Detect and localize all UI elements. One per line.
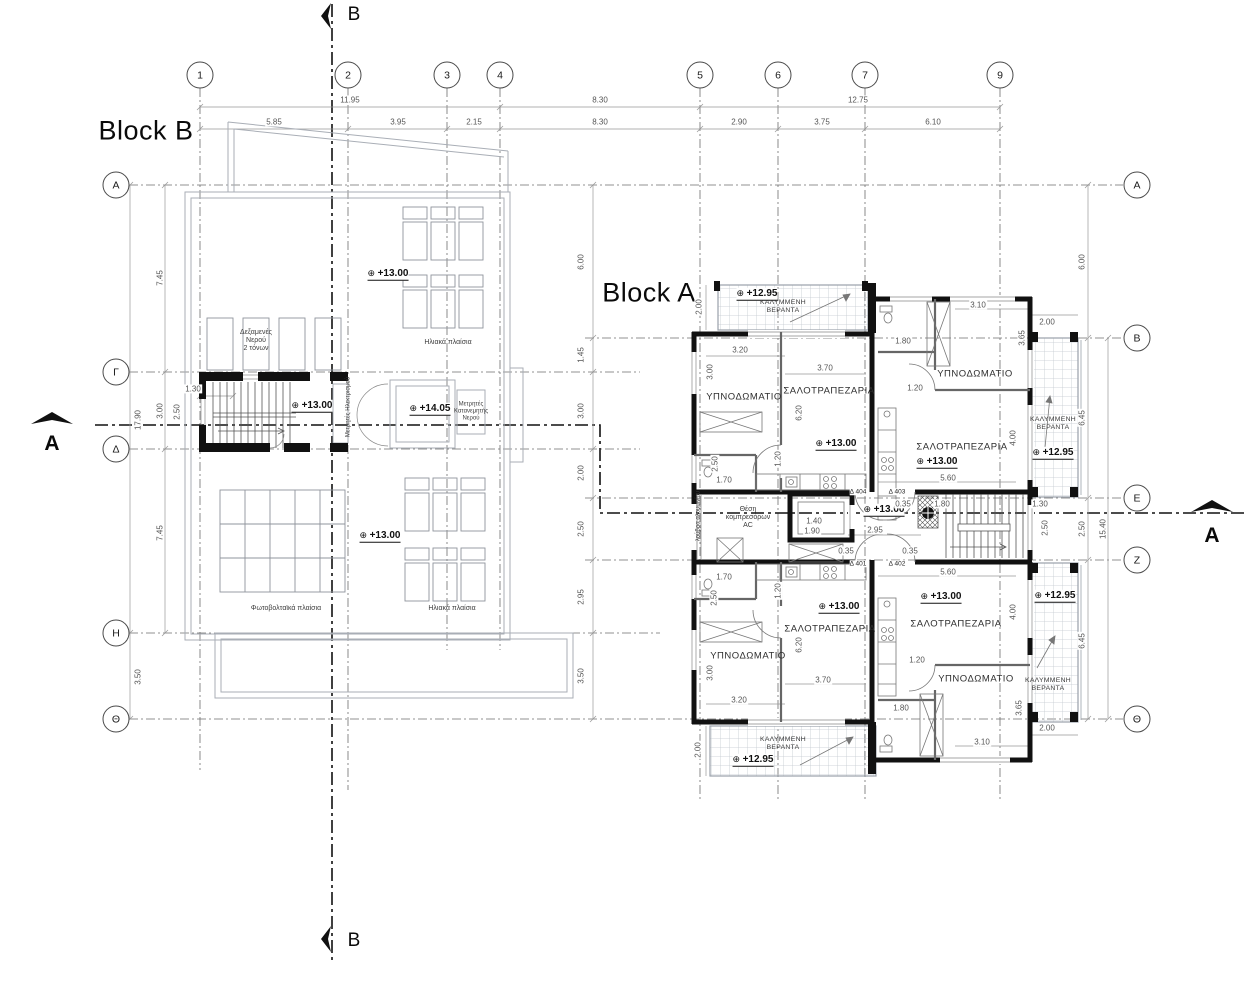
- grid-column-bubble: 7: [852, 62, 879, 89]
- block-a-core: [697, 494, 1023, 560]
- grid-column-bubble: 2: [335, 62, 362, 89]
- grid-row-bubble: A: [103, 172, 130, 199]
- block-b-outline: [185, 122, 573, 698]
- plan-linework: [0, 0, 1251, 981]
- grid-row-bubble: E: [1124, 485, 1151, 512]
- grid-row-bubble: B: [1124, 325, 1151, 352]
- grid-row-bubble: H: [103, 620, 130, 647]
- grid-row-bubble: A: [1124, 172, 1151, 199]
- wardrobes: [700, 302, 950, 756]
- grid-column-bubble: 6: [765, 62, 792, 89]
- block-b-windows: [201, 375, 388, 448]
- floor-plan-canvas: Block BBlock A BBAA 11.958.3012.755.853.…: [0, 0, 1251, 981]
- grid-column-bubble: 5: [687, 62, 714, 89]
- grid-column-bubble: 3: [434, 62, 461, 89]
- grid-row-bubble: Θ: [1124, 706, 1151, 733]
- grid-row-bubble: Z: [1124, 547, 1151, 574]
- block-b-walls: [199, 372, 348, 452]
- bath-fixtures: [702, 306, 892, 752]
- kitchen-counters: [756, 408, 896, 696]
- block-a-verandas: [710, 285, 1081, 776]
- grid-row-bubble: Γ: [103, 359, 130, 386]
- grid-row-bubble: Δ: [103, 436, 130, 463]
- grid-column-bubble: 4: [487, 62, 514, 89]
- grid-column-bubble: 9: [987, 62, 1014, 89]
- grid-lines: [129, 88, 1123, 800]
- dimension-lines: [127, 104, 1111, 776]
- grid-column-bubble: 1: [187, 62, 214, 89]
- block-b-equipment: [207, 207, 485, 601]
- grid-row-bubble: Θ: [103, 706, 130, 733]
